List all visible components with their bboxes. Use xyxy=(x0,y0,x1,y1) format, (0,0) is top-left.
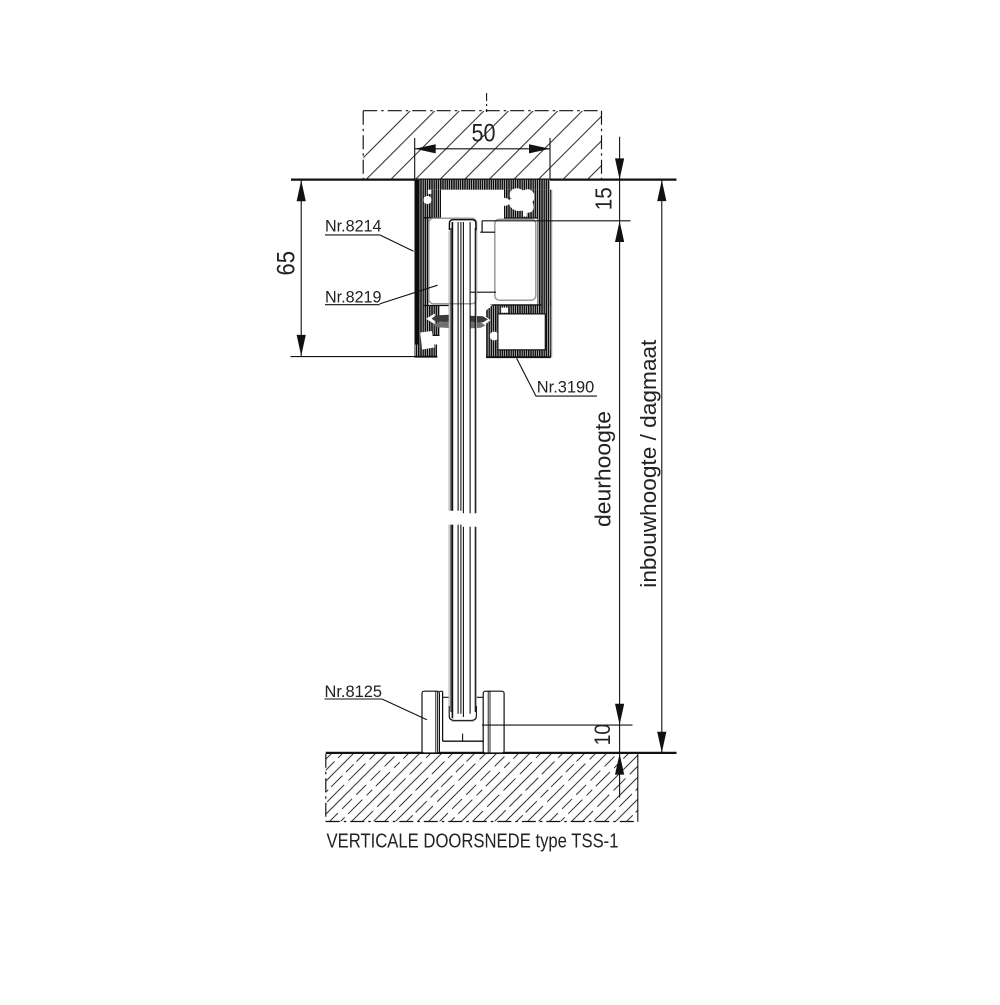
svg-text:Nr.3190: Nr.3190 xyxy=(537,379,595,397)
svg-text:10: 10 xyxy=(590,724,615,746)
svg-text:Nr.8219: Nr.8219 xyxy=(325,289,382,307)
svg-text:65: 65 xyxy=(272,251,300,276)
svg-text:Nr.8214: Nr.8214 xyxy=(325,218,382,236)
svg-text:15: 15 xyxy=(590,187,616,210)
svg-text:deurhoogte: deurhoogte xyxy=(591,411,616,527)
svg-text:50: 50 xyxy=(472,120,496,148)
svg-text:inbouwhoogte / dagmaat: inbouwhoogte / dagmaat xyxy=(636,340,661,588)
svg-text:VERTICALE DOORSNEDE type TSS-1: VERTICALE DOORSNEDE type TSS-1 xyxy=(327,830,619,852)
svg-text:Nr.8125: Nr.8125 xyxy=(325,683,383,701)
